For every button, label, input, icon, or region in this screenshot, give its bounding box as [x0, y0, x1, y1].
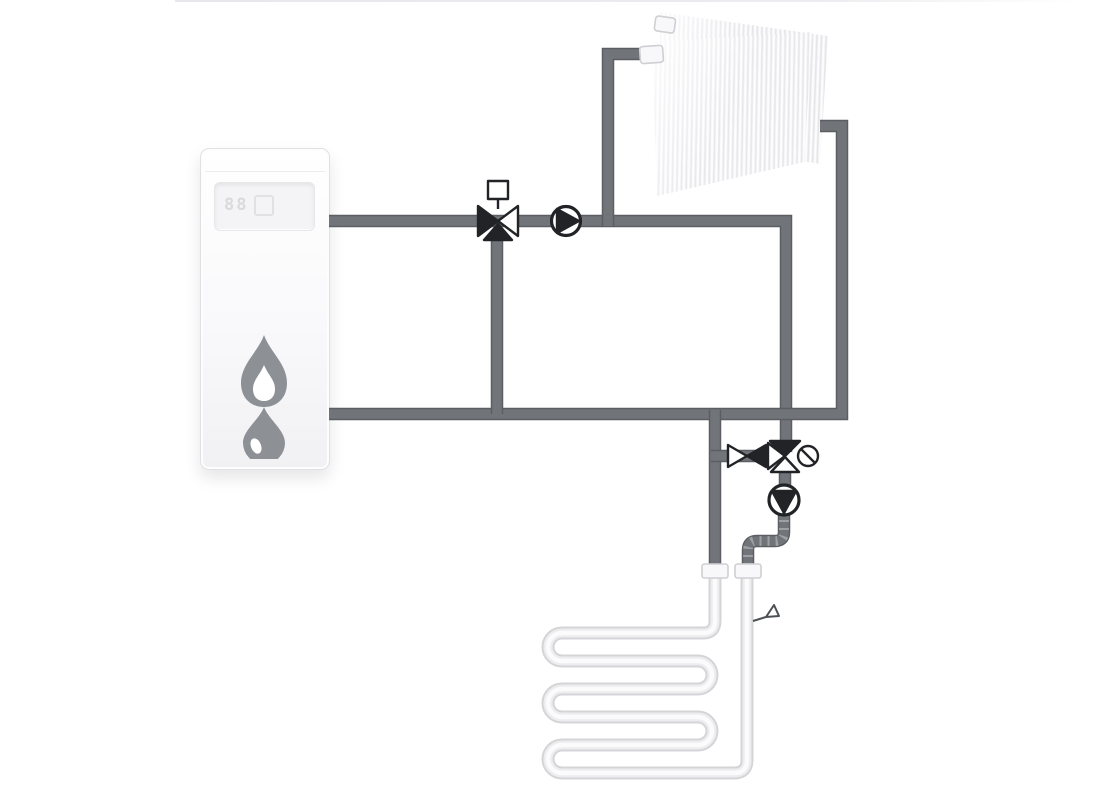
- shutoff-valve-icon: [728, 445, 766, 467]
- vent-valve-icon: [753, 605, 779, 621]
- diagram-canvas: 88: [0, 0, 1100, 795]
- return-pipe: [329, 126, 842, 414]
- mixing-valve-2-icon: [768, 441, 818, 472]
- radiator-supply-pipe: [608, 54, 647, 226]
- mixing-valve-1-icon: [478, 181, 518, 240]
- piping-layer: [0, 0, 1100, 795]
- floor-supply-fitting: [735, 564, 761, 578]
- underfloor-heating-coil: [548, 572, 747, 773]
- radiator-top-stub: [654, 16, 676, 34]
- floor-return-fitting: [702, 564, 728, 578]
- radiator-inlet-fitting: [639, 45, 663, 64]
- pump-outlet-flex-pipe: [748, 512, 784, 566]
- pump-2-icon: [769, 485, 799, 515]
- pump-1-icon: [552, 207, 581, 236]
